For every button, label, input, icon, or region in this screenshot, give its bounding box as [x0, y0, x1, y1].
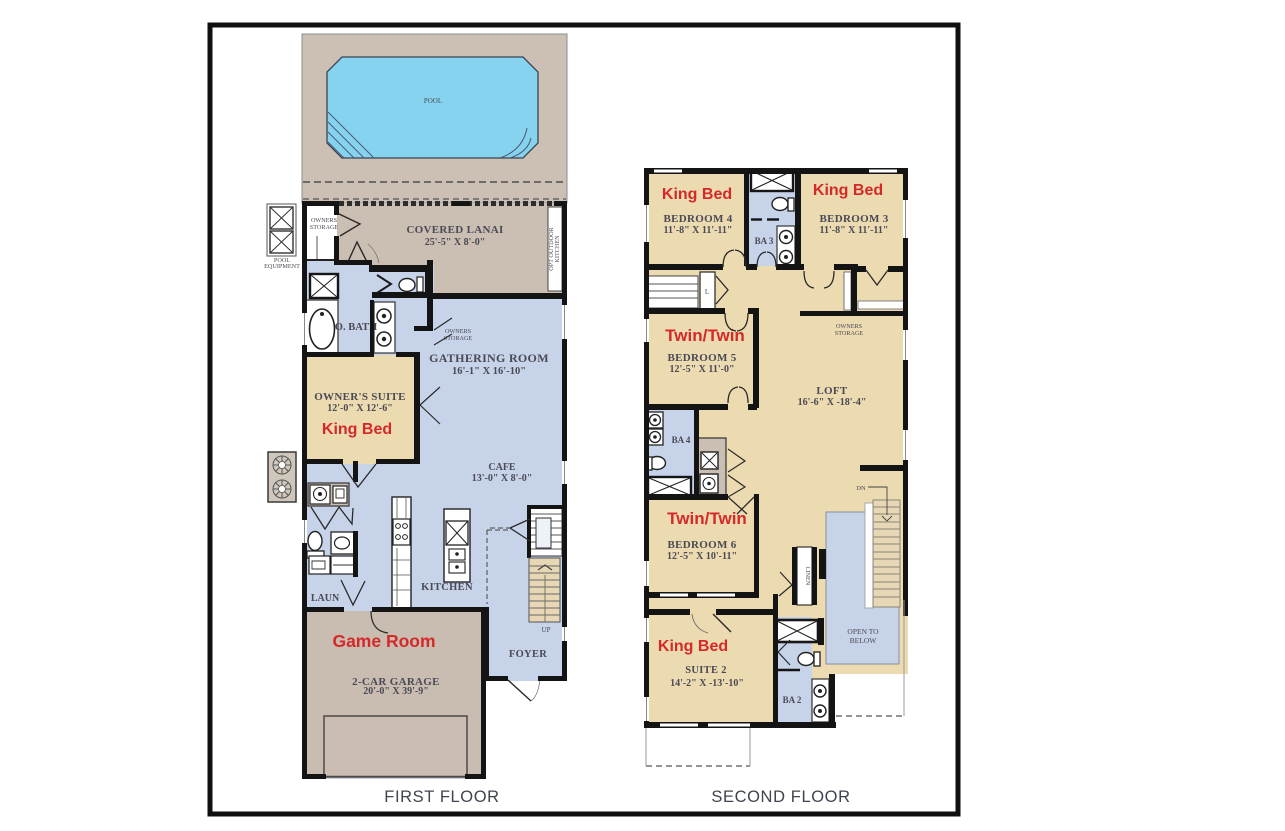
svg-text:12'-0" X 12'-6": 12'-0" X 12'-6": [327, 403, 393, 414]
svg-text:POOL: POOL: [424, 97, 442, 105]
svg-text:STORAGE: STORAGE: [835, 330, 864, 337]
svg-text:LAUN: LAUN: [311, 593, 340, 604]
svg-text:Game Room: Game Room: [332, 631, 435, 651]
svg-text:Twin/Twin: Twin/Twin: [667, 509, 747, 528]
svg-text:BA 2: BA 2: [783, 695, 802, 705]
svg-text:16'-6" X -18'-4": 16'-6" X -18'-4": [798, 397, 867, 408]
svg-text:King Bed: King Bed: [813, 182, 883, 199]
svg-text:BEDROOM 6: BEDROOM 6: [667, 539, 736, 551]
svg-text:Twin/Twin: Twin/Twin: [665, 326, 745, 345]
svg-text:King Bed: King Bed: [658, 638, 728, 655]
svg-text:13'-0" X 8'-0": 13'-0" X 8'-0": [472, 473, 533, 484]
svg-text:EQUIPMENT: EQUIPMENT: [264, 263, 300, 270]
svg-text:20'-0" X 39'-9": 20'-0" X 39'-9": [363, 686, 429, 697]
svg-text:GATHERING ROOM: GATHERING ROOM: [429, 351, 549, 365]
svg-text:11'-8" X 11'-11": 11'-8" X 11'-11": [664, 225, 733, 236]
svg-text:OWNERS: OWNERS: [836, 323, 863, 330]
svg-text:BELOW: BELOW: [850, 636, 878, 645]
svg-text:CAFE: CAFE: [488, 462, 516, 473]
svg-text:STORAGE: STORAGE: [310, 224, 339, 231]
svg-text:King Bed: King Bed: [662, 186, 732, 203]
svg-text:12'-5" X 10'-11": 12'-5" X 10'-11": [667, 551, 737, 562]
svg-text:KITCHEN: KITCHEN: [421, 582, 473, 593]
svg-text:COVERED LANAI: COVERED LANAI: [406, 224, 503, 236]
svg-text:OWNERS: OWNERS: [311, 217, 338, 224]
svg-text:L: L: [705, 288, 709, 296]
svg-text:OWNERS: OWNERS: [445, 328, 472, 335]
svg-text:BA 4: BA 4: [672, 435, 691, 445]
svg-text:FOYER: FOYER: [509, 649, 547, 660]
svg-text:SECOND FLOOR: SECOND FLOOR: [711, 788, 850, 806]
svg-text:BEDROOM 4: BEDROOM 4: [663, 213, 732, 225]
svg-text:FIRST FLOOR: FIRST FLOOR: [384, 788, 499, 806]
svg-text:12'-5" X 11'-0": 12'-5" X 11'-0": [670, 364, 735, 375]
svg-text:14'-2" X -13'-10": 14'-2" X -13'-10": [670, 678, 744, 689]
svg-text:King Bed: King Bed: [322, 421, 392, 438]
svg-text:BEDROOM 3: BEDROOM 3: [819, 213, 888, 225]
svg-text:DN: DN: [856, 485, 866, 492]
svg-text:LINEN: LINEN: [804, 567, 811, 586]
svg-text:11'-8" X 11'-11": 11'-8" X 11'-11": [820, 225, 889, 236]
svg-text:BA 3: BA 3: [755, 236, 774, 246]
svg-text:25'-5" X 8'-0": 25'-5" X 8'-0": [425, 237, 486, 248]
svg-text:KITCHEN: KITCHEN: [554, 235, 561, 263]
svg-text:16'-1" X 16'-10": 16'-1" X 16'-10": [452, 366, 526, 377]
svg-text:BEDROOM 5: BEDROOM 5: [667, 352, 736, 364]
svg-text:OWNER'S SUITE: OWNER'S SUITE: [314, 391, 406, 403]
svg-text:UP: UP: [542, 626, 551, 634]
svg-text:SUITE 2: SUITE 2: [685, 665, 727, 676]
svg-text:OPEN TO: OPEN TO: [847, 627, 879, 636]
svg-text:LOFT: LOFT: [816, 385, 848, 397]
